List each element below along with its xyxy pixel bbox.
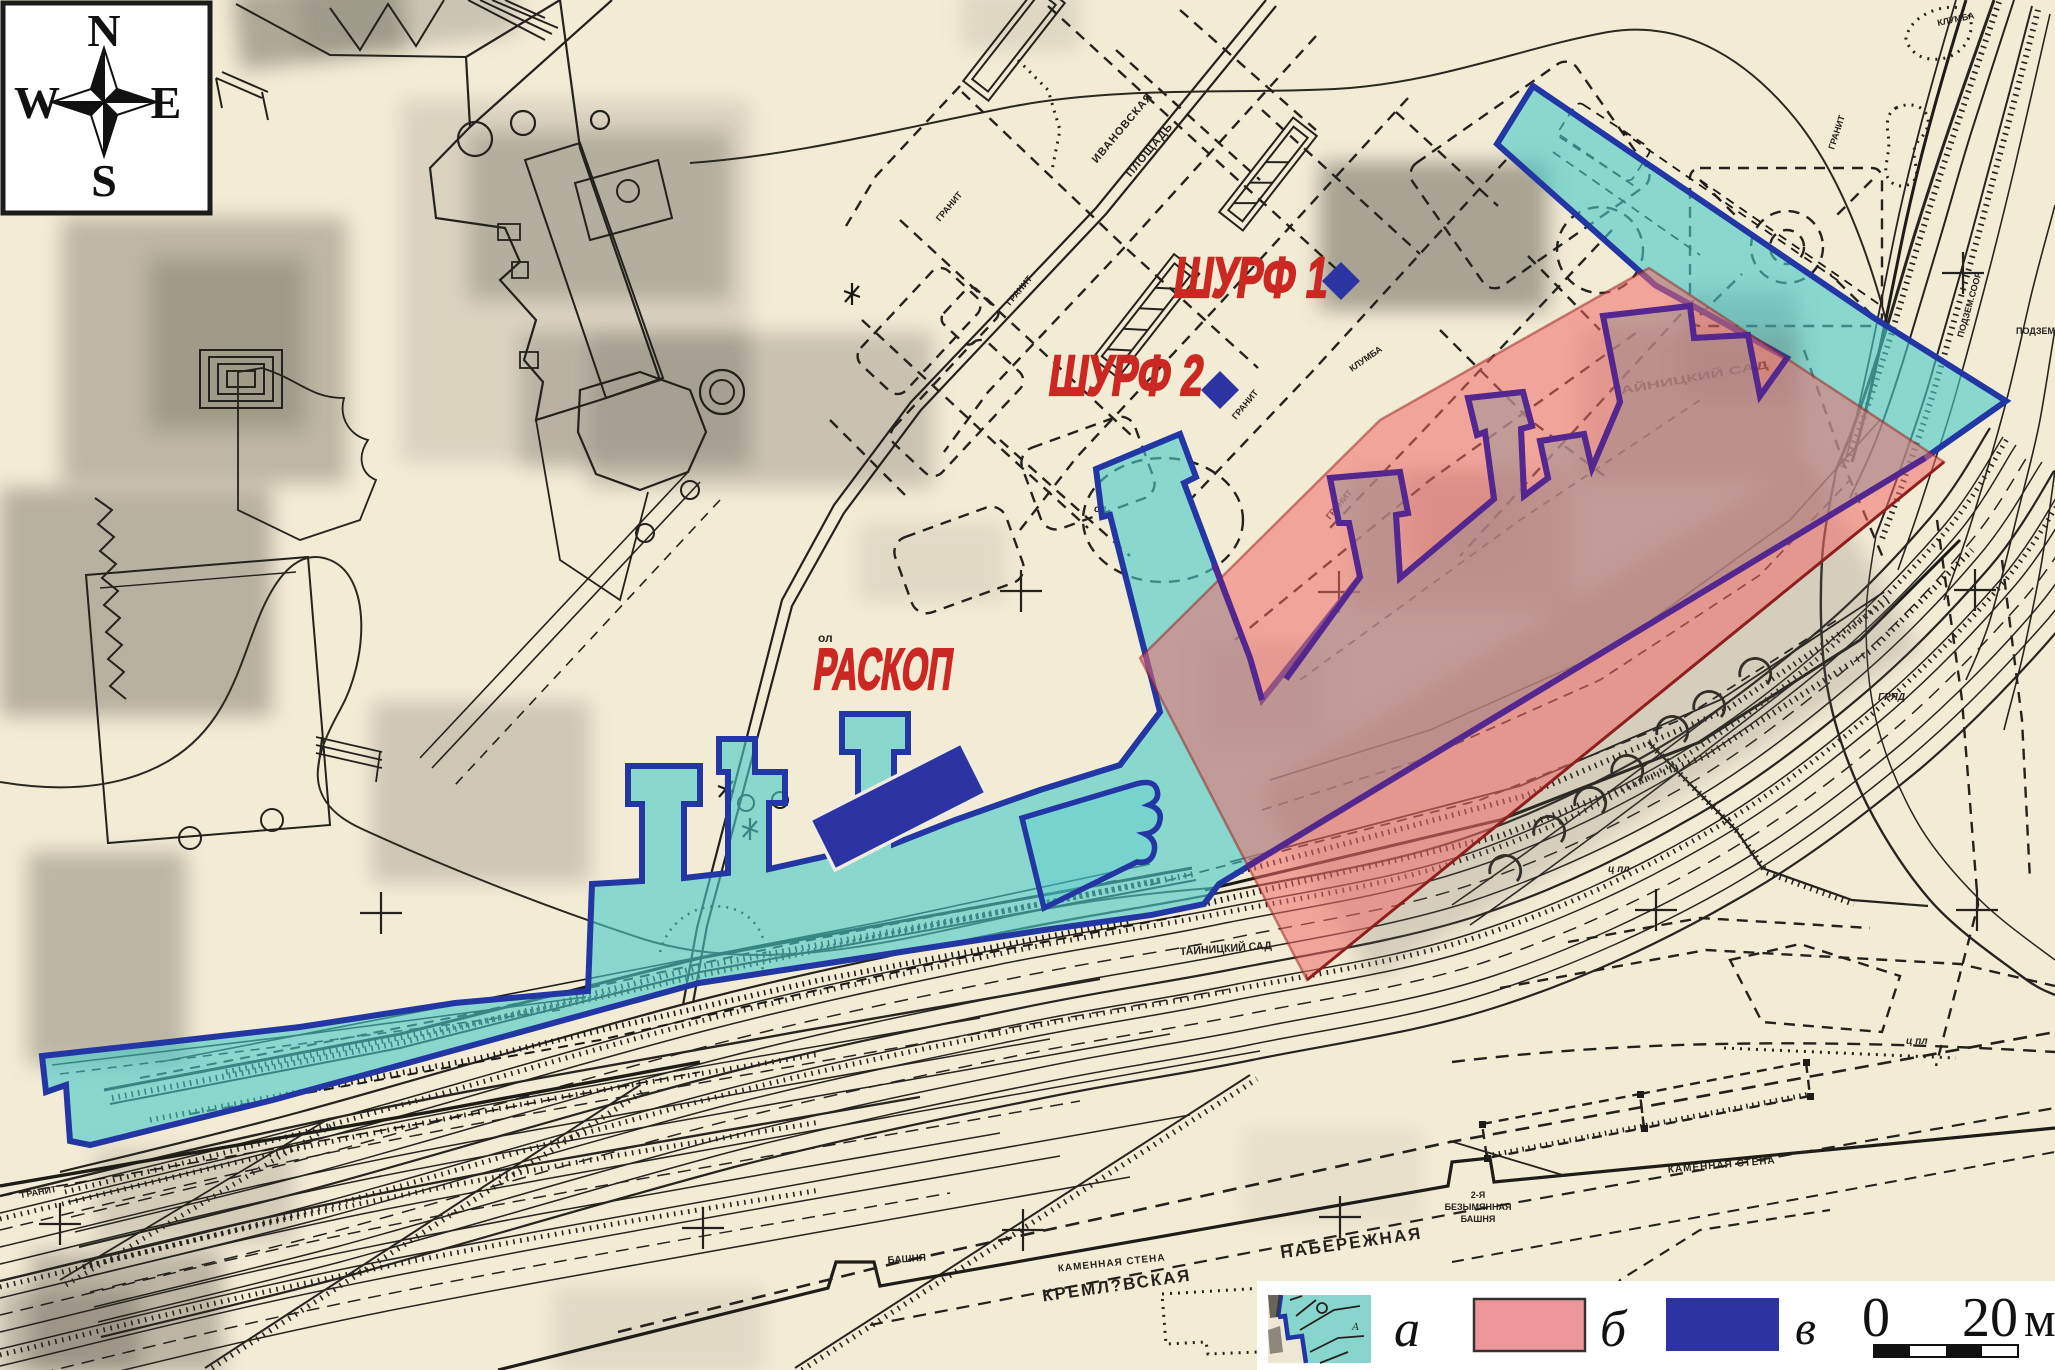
svg-text:в: в xyxy=(1795,1302,1816,1355)
svg-text:ц пл: ц пл xyxy=(1906,1036,1928,1047)
svg-text:S: S xyxy=(91,155,117,206)
svg-text:E: E xyxy=(151,77,182,128)
svg-text:ГРЯД: ГРЯД xyxy=(1878,692,1905,703)
svg-text:а: а xyxy=(1394,1301,1420,1358)
svg-text:б: б xyxy=(1600,1301,1628,1358)
svg-text:2-Я: 2-Я xyxy=(1471,1190,1485,1200)
svg-text:W: W xyxy=(14,77,60,128)
svg-text:ШУРФ 2: ШУРФ 2 xyxy=(1045,345,1208,408)
svg-text:ШУРФ 1: ШУРФ 1 xyxy=(1170,247,1333,310)
svg-text:БЕЗЫМЯННАЯ: БЕЗЫМЯННАЯ xyxy=(1445,1202,1512,1212)
svg-text:ц пл: ц пл xyxy=(1608,864,1630,875)
svg-text:А: А xyxy=(1351,1321,1359,1333)
svg-text:РАСКОП: РАСКОП xyxy=(810,638,957,702)
svg-text:м: м xyxy=(2024,1291,2055,1347)
svg-text:0: 0 xyxy=(1862,1287,1890,1349)
svg-text:N: N xyxy=(87,5,120,56)
svg-text:БАШНЯ: БАШНЯ xyxy=(1461,1214,1496,1224)
svg-text:20: 20 xyxy=(1962,1287,2018,1349)
svg-text:ПОДЗЕМ.СООР.: ПОДЗЕМ.СООР. xyxy=(2016,326,2055,336)
